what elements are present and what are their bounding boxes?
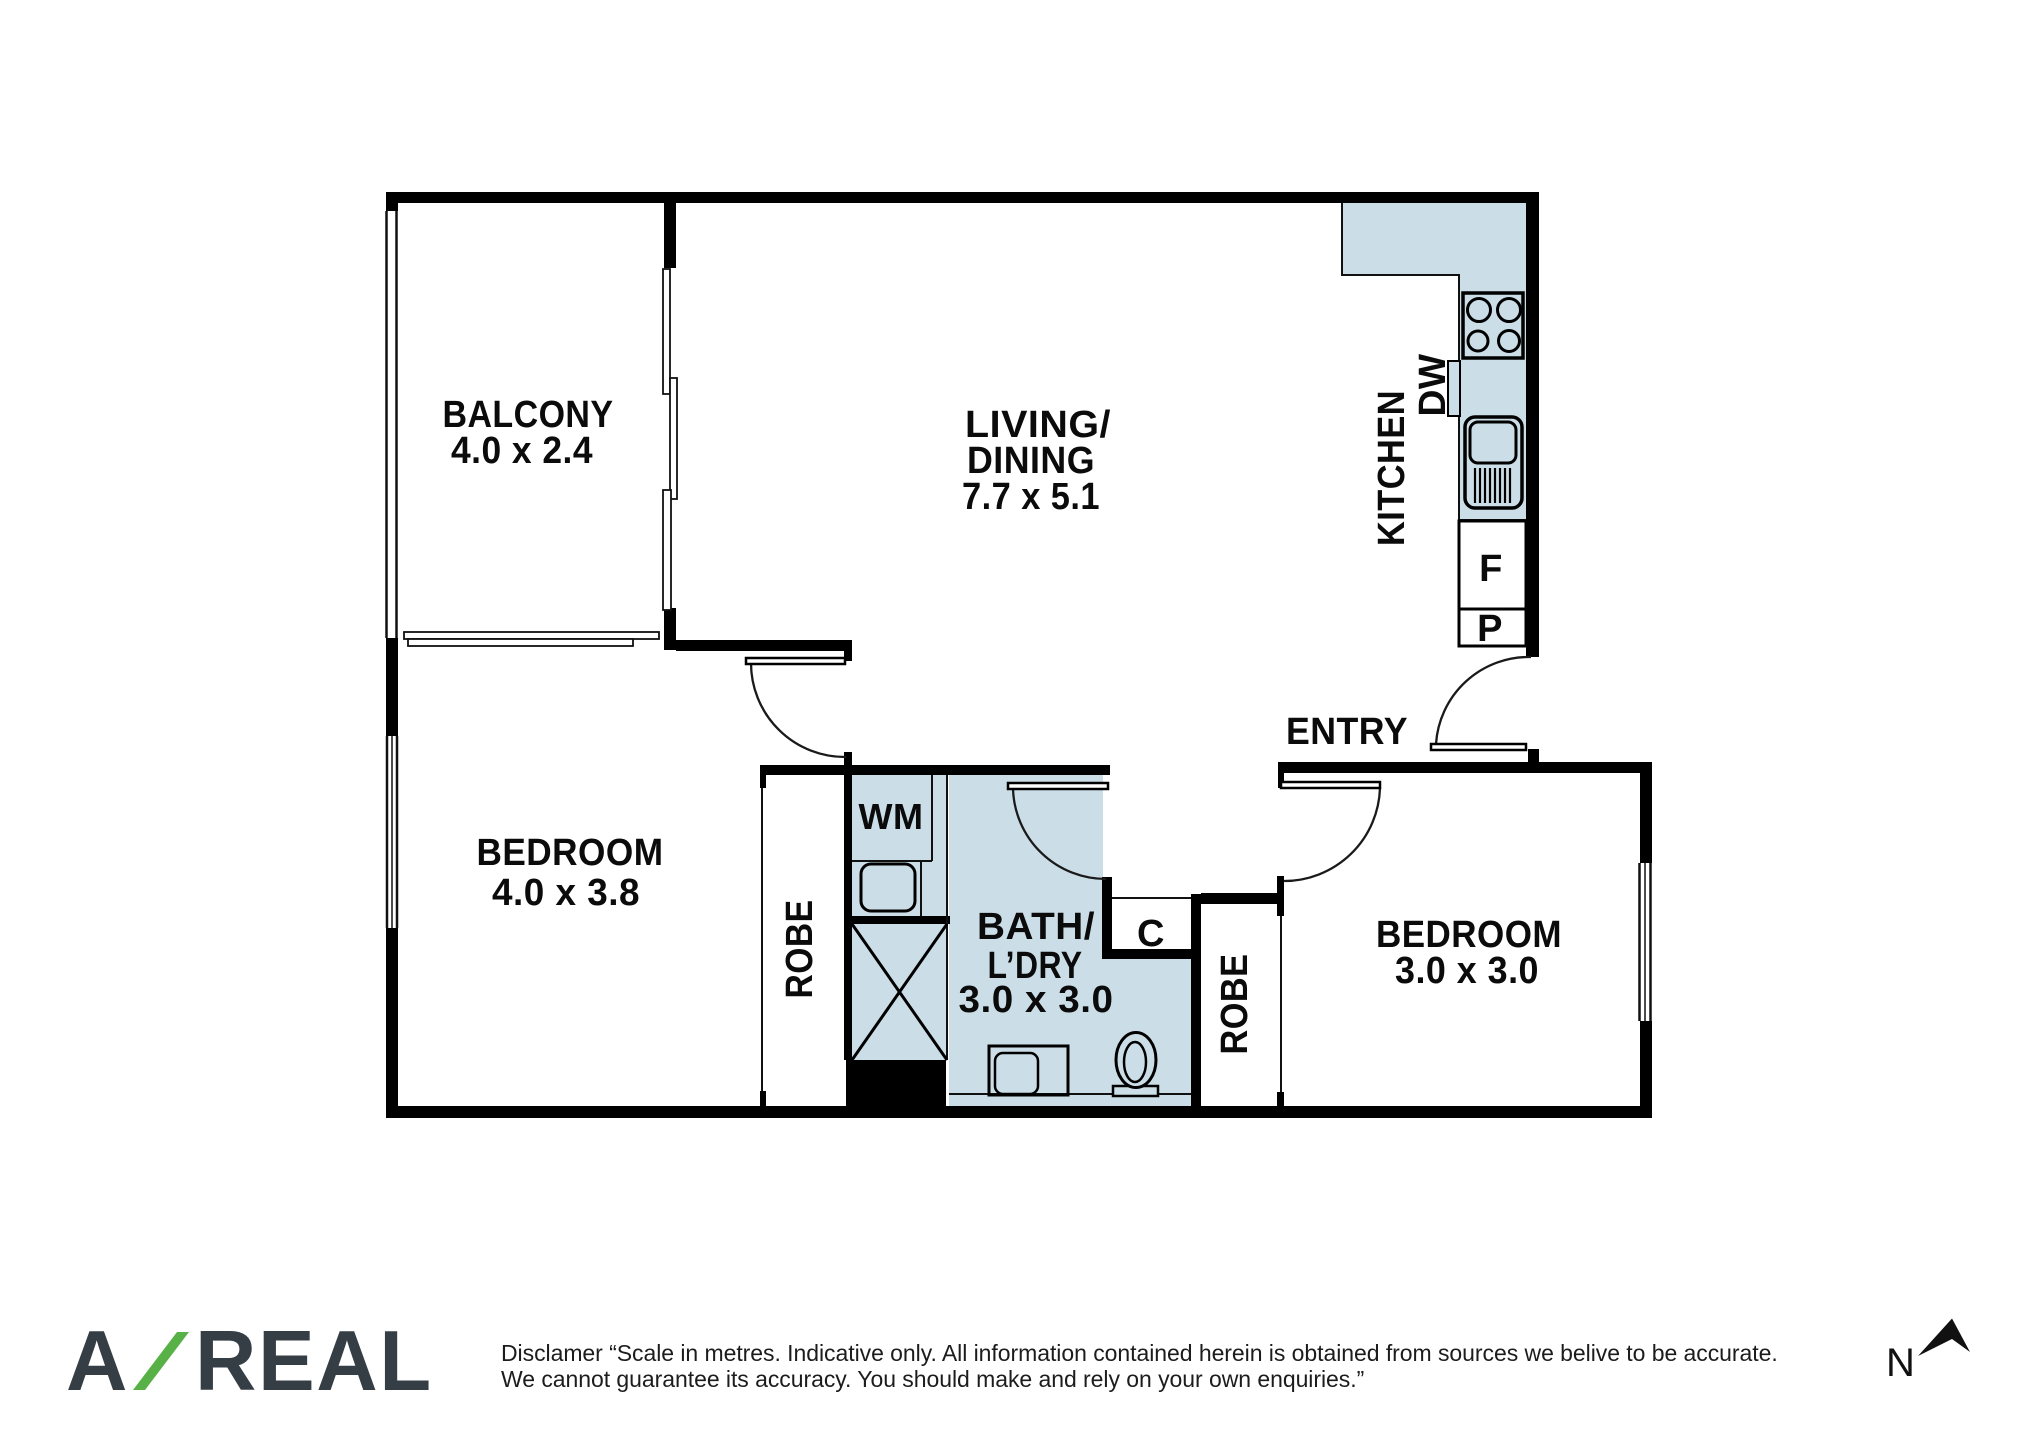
svg-text:REAL: REAL	[195, 1314, 433, 1409]
svg-text:KITCHEN: KITCHEN	[1371, 390, 1413, 546]
svg-text:4.0 x 3.8: 4.0 x 3.8	[492, 872, 640, 914]
svg-text:BATH/: BATH/	[977, 906, 1095, 948]
svg-text:N: N	[1886, 1341, 1915, 1385]
svg-text:4.0 x 2.4: 4.0 x 2.4	[451, 430, 593, 472]
svg-text:BEDROOM: BEDROOM	[477, 832, 664, 874]
svg-text:C: C	[1137, 913, 1165, 955]
svg-text:ENTRY: ENTRY	[1286, 711, 1408, 753]
svg-text:A: A	[66, 1314, 127, 1409]
svg-text:DW: DW	[1412, 354, 1454, 417]
svg-text:3.0 x 3.0: 3.0 x 3.0	[959, 979, 1114, 1021]
svg-text:ROBE: ROBE	[1214, 954, 1256, 1055]
svg-text:ROBE: ROBE	[779, 900, 821, 999]
svg-text:3.0 x 3.0: 3.0 x 3.0	[1395, 950, 1539, 992]
svg-text:Disclamer “Scale in metres. In: Disclamer “Scale in metres. Indicative o…	[501, 1340, 1778, 1366]
svg-text:P: P	[1477, 608, 1503, 650]
svg-text:We cannot guarantee its accura: We cannot guarantee its accuracy. You sh…	[501, 1366, 1364, 1392]
svg-text:F: F	[1479, 548, 1503, 590]
svg-text:7.7 x 5.1: 7.7 x 5.1	[962, 476, 1100, 518]
svg-text:WM: WM	[859, 796, 924, 837]
